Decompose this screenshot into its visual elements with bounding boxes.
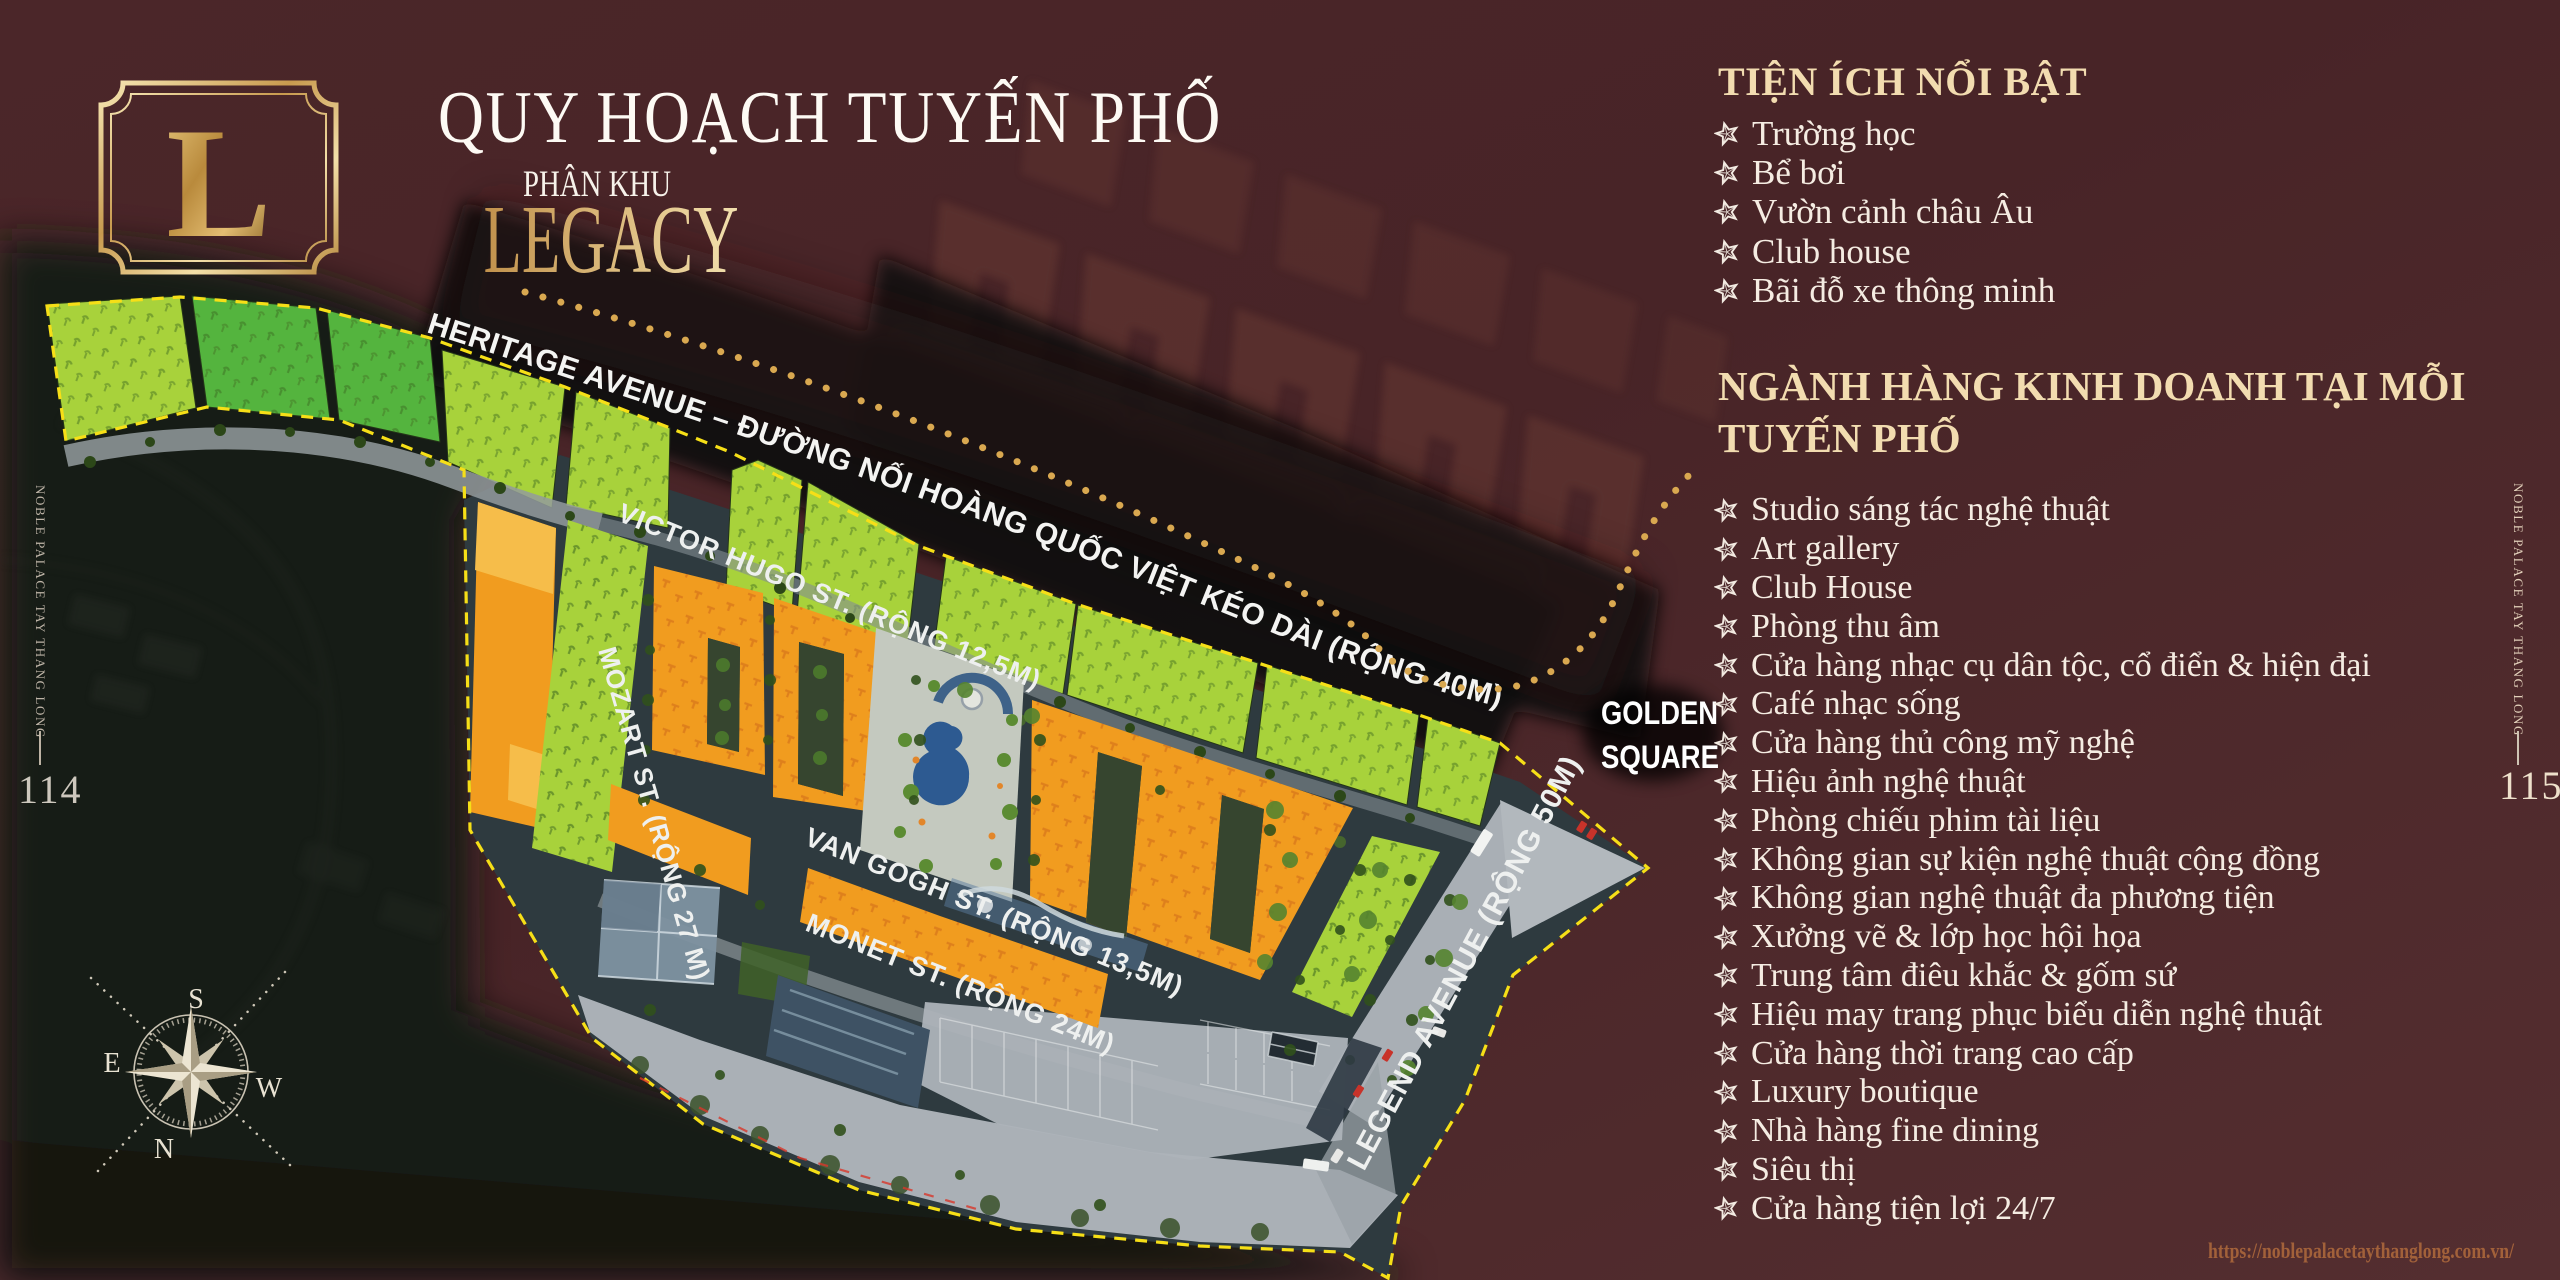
svg-text:N: N [154,1134,174,1165]
svg-text:L: L [166,96,271,271]
svg-text:QUY HOẠCH TUYẾN PHỐ: QUY HOẠCH TUYẾN PHỐ [438,76,1222,159]
svg-text:E: E [103,1048,120,1079]
svg-text:SQUARE: SQUARE [1601,739,1719,775]
svg-text:W: W [256,1073,283,1104]
svg-text:GOLDEN: GOLDEN [1601,695,1718,731]
svg-text:https://noblepalacetaythanglon: https://noblepalacetaythanglong.com.vn/ [2208,1238,2515,1263]
svg-text:S: S [188,984,204,1015]
svg-text:LEGACY: LEGACY [484,186,739,293]
